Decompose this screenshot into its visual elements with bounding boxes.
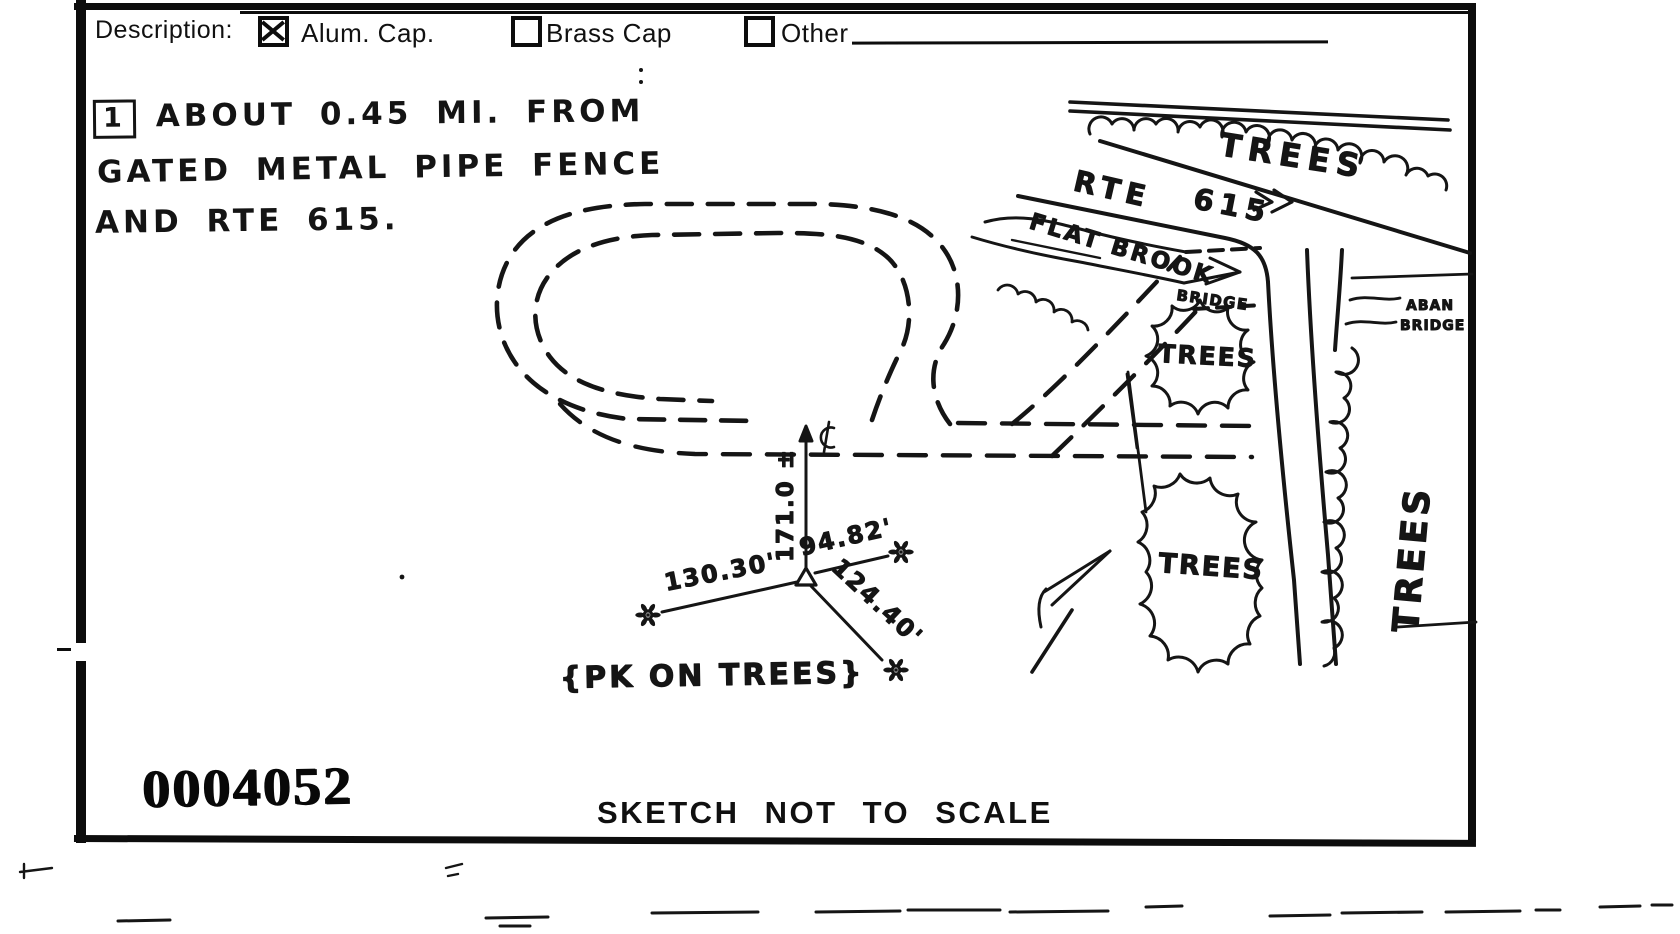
label-trees-mid: TREES bbox=[1158, 339, 1258, 373]
treeline-brook-bank bbox=[998, 285, 1088, 330]
sketch-scale-caption: SKETCH NOT TO SCALE bbox=[597, 795, 1053, 831]
label-trees-top: TREES bbox=[1217, 125, 1369, 186]
loop-road-dashed bbox=[497, 204, 958, 424]
tree-icon bbox=[637, 606, 659, 625]
label-tie-southeast: 124.40' bbox=[826, 553, 928, 651]
label-rte: RTE bbox=[1070, 164, 1154, 215]
tree-icon bbox=[890, 543, 912, 562]
label-aban-1: ABAN bbox=[1406, 298, 1454, 314]
label-tie-north: 171.0 ± bbox=[773, 448, 799, 562]
label-aban-2: BRIDGE bbox=[1400, 318, 1465, 334]
document-number-stamp: 0004052 bbox=[141, 754, 353, 820]
thin-arrow-icon bbox=[1127, 372, 1146, 512]
treeline-east bbox=[1322, 348, 1358, 666]
centerline-icon bbox=[821, 422, 834, 452]
monument-triangle-icon bbox=[796, 568, 816, 585]
tree-icon bbox=[885, 661, 907, 680]
label-trees-right-vertical: TREES bbox=[1386, 484, 1440, 634]
label-trees-lower: TREES bbox=[1158, 548, 1265, 586]
tie-arrowhead bbox=[800, 426, 812, 441]
north-arrow-icon bbox=[1032, 551, 1110, 672]
label-pk-note: {PK ON TREES} bbox=[560, 656, 865, 696]
scanned-survey-sketch-page: Description: Alum. Cap. Brass Cap Other … bbox=[0, 0, 1680, 934]
